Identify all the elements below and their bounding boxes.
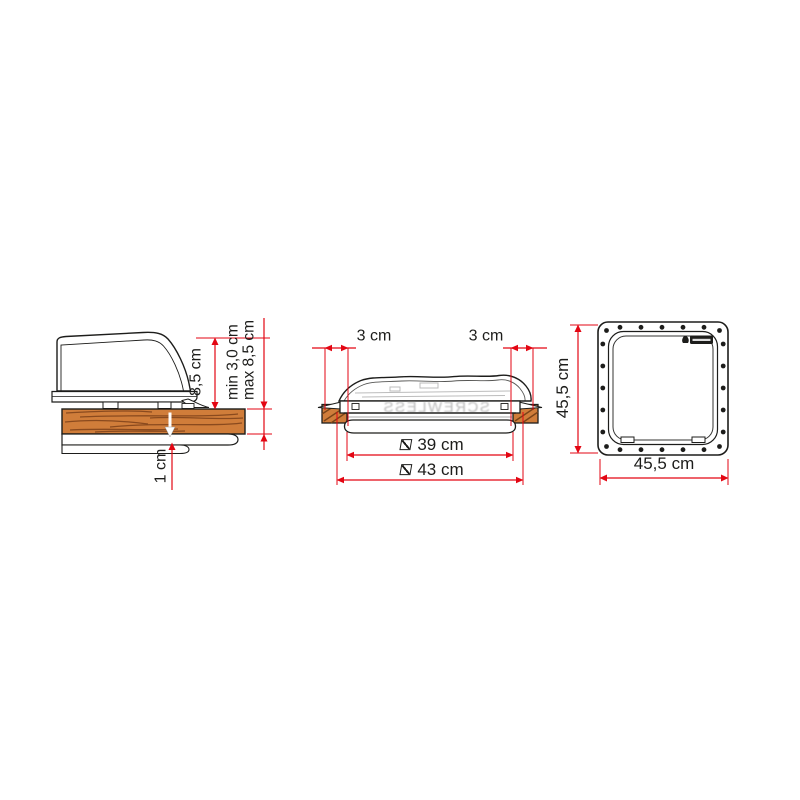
fiamma-logo-badge — [682, 336, 713, 345]
dim-roof-thickness-max: max 8,5 cm — [242, 320, 258, 400]
dim-opening-width-label: 39 cm — [400, 436, 463, 454]
dim-roof-thickness-label: min 3,0 cm max 8,5 cm — [226, 320, 259, 400]
dim-left-offset-label: 3 cm — [357, 329, 392, 346]
dim-vent-height-label: 8,5 cm — [189, 348, 206, 396]
square-slash-icon — [399, 440, 412, 451]
dim-right-offset-label: 3 cm — [469, 329, 504, 346]
dim-overall-width-value: 43 cm — [417, 461, 463, 479]
vent-dome-side — [57, 332, 191, 391]
interior-trim-front — [344, 413, 516, 433]
dim-opening-width-value: 39 cm — [417, 436, 463, 454]
square-slash-icon — [399, 465, 412, 476]
installation-diagram-canvas: SCREWLESS — [0, 0, 800, 800]
roof-panel-wood — [62, 409, 245, 434]
dim-roof-thickness-min: min 3,0 cm — [226, 320, 242, 400]
vent-dome-front — [339, 375, 531, 401]
dim-inner-clearance-label: 1 cm — [154, 449, 171, 484]
dim-overall-width-label: 43 cm — [400, 461, 463, 479]
dim-frame-width-label: 45,5 cm — [634, 455, 694, 473]
vent-base-flange-side — [52, 392, 209, 409]
interior-trim-side — [62, 434, 238, 454]
dim-frame-height-label: 45,5 cm — [554, 358, 572, 418]
diagram-line-art: SCREWLESS — [0, 0, 800, 800]
